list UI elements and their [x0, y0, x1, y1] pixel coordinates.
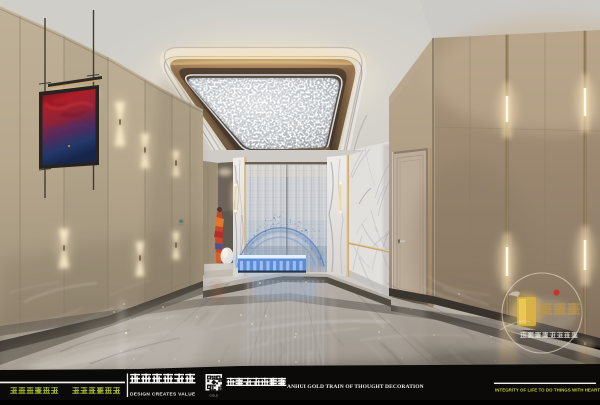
svg-text:DESIGN CREATES VALUE: DESIGN CREATES VALUE — [130, 391, 196, 397]
svg-text:ANHUI GOLD TRAIN OF THOUGHT DE: ANHUI GOLD TRAIN OF THOUGHT DECORATION — [287, 384, 424, 390]
svg-text:GOLD: GOLD — [210, 393, 219, 397]
svg-text:INTEGRITY OF LIFE TO DO THINGS: INTEGRITY OF LIFE TO DO THINGS WITH HEAR… — [495, 388, 600, 393]
